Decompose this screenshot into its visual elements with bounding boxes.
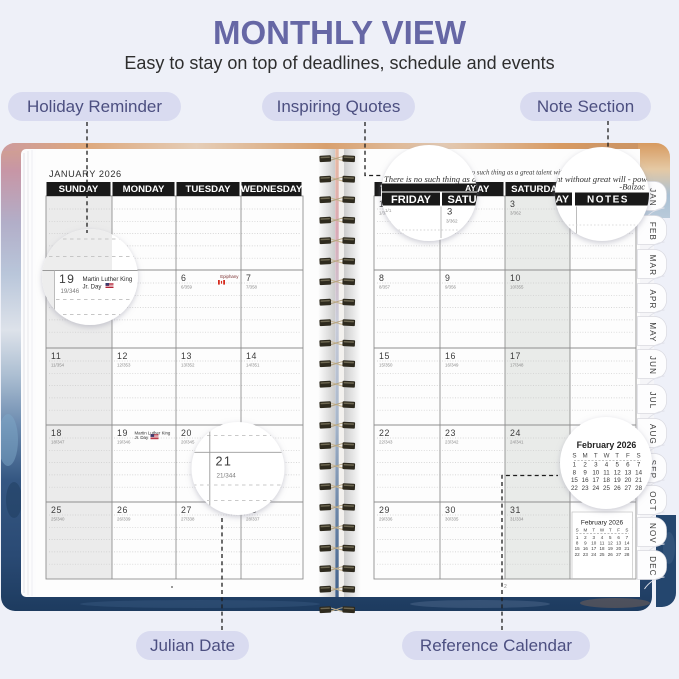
svg-text:14: 14	[246, 351, 257, 361]
svg-text:14: 14	[624, 541, 630, 546]
svg-text:30/335: 30/335	[445, 516, 459, 521]
svg-text:JANUARY 2026: JANUARY 2026	[49, 169, 122, 179]
svg-text:27: 27	[624, 485, 631, 492]
svg-text:9/356: 9/356	[445, 284, 457, 289]
svg-text:16: 16	[582, 477, 589, 484]
svg-text:S: S	[625, 528, 628, 533]
svg-text:11: 11	[600, 541, 605, 546]
svg-text:5: 5	[615, 462, 619, 469]
svg-text:14/351: 14/351	[246, 362, 260, 367]
svg-text:13: 13	[181, 351, 192, 361]
svg-text:February 2026: February 2026	[581, 520, 624, 527]
svg-text:1/1: 1/1	[385, 208, 392, 213]
svg-text:FEB: FEB	[648, 222, 657, 241]
svg-text:7: 7	[637, 462, 641, 469]
svg-text:25: 25	[603, 485, 610, 492]
svg-text:18: 18	[603, 477, 610, 484]
svg-text:SUNDAY: SUNDAY	[59, 184, 99, 195]
svg-text:1: 1	[573, 462, 577, 469]
svg-text:Jr. Day: Jr. Day	[83, 283, 103, 290]
svg-text:WEDNESDAY: WEDNESDAY	[241, 184, 303, 195]
svg-text:22: 22	[571, 485, 578, 492]
svg-text:20: 20	[616, 546, 622, 551]
svg-text:12: 12	[117, 351, 128, 361]
svg-text:17/348: 17/348	[510, 362, 524, 367]
svg-text:7: 7	[246, 273, 252, 283]
svg-text:T: T	[594, 453, 598, 460]
svg-text:10: 10	[592, 469, 599, 476]
svg-text:16/349: 16/349	[445, 362, 459, 367]
svg-text:10: 10	[510, 273, 521, 283]
svg-text:Jr. Day: Jr. Day	[135, 435, 149, 440]
svg-text:21: 21	[624, 546, 630, 551]
svg-text:18: 18	[599, 546, 605, 551]
svg-text:11: 11	[603, 469, 610, 476]
svg-text:28/337: 28/337	[246, 516, 260, 521]
svg-text:20/345: 20/345	[181, 439, 195, 444]
svg-text:M: M	[584, 528, 588, 533]
svg-text:13: 13	[616, 541, 622, 546]
svg-text:21/344: 21/344	[217, 473, 237, 480]
svg-text:NOTES: NOTES	[587, 195, 629, 206]
svg-text:6: 6	[181, 273, 187, 283]
svg-text:3: 3	[594, 462, 598, 469]
svg-text:10/355: 10/355	[510, 284, 524, 289]
svg-text:11/354: 11/354	[51, 362, 65, 367]
svg-text:4: 4	[605, 462, 609, 469]
svg-text:16: 16	[445, 351, 456, 361]
svg-text:10: 10	[591, 541, 597, 546]
svg-text:TUESDAY: TUESDAY	[186, 184, 232, 195]
svg-text:29/336: 29/336	[379, 516, 393, 521]
svg-text:T: T	[592, 528, 595, 533]
svg-text:6: 6	[626, 462, 630, 469]
svg-text:12: 12	[614, 469, 621, 476]
svg-text:23: 23	[445, 428, 456, 438]
svg-text:3: 3	[510, 199, 516, 209]
svg-text:26: 26	[608, 552, 614, 557]
svg-text:W: W	[604, 453, 610, 460]
svg-text:7/358: 7/358	[246, 284, 258, 289]
svg-text:FRIDAY: FRIDAY	[391, 194, 432, 206]
svg-text:18/347: 18/347	[51, 439, 65, 444]
svg-text:25/340: 25/340	[51, 516, 65, 521]
svg-text:2: 2	[583, 462, 587, 469]
svg-text:T: T	[615, 453, 619, 460]
svg-text:27: 27	[181, 505, 192, 515]
svg-text:30: 30	[445, 505, 456, 515]
svg-text:19/346: 19/346	[117, 439, 131, 444]
svg-text:8: 8	[573, 469, 577, 476]
svg-text:25: 25	[51, 505, 62, 515]
svg-text:24/341: 24/341	[510, 439, 524, 444]
svg-text:3/362: 3/362	[510, 210, 522, 215]
svg-text:MAR: MAR	[648, 255, 657, 276]
svg-text:F: F	[617, 528, 620, 533]
svg-text:23: 23	[583, 552, 589, 557]
svg-text:17: 17	[592, 477, 599, 484]
svg-text:T: T	[609, 528, 612, 533]
svg-text:NOV: NOV	[648, 523, 657, 544]
svg-text:21: 21	[635, 477, 642, 484]
svg-text:S: S	[572, 453, 576, 460]
svg-text:21: 21	[216, 455, 233, 469]
svg-text:2: 2	[504, 584, 507, 590]
svg-text:15: 15	[379, 351, 390, 361]
svg-text:12/353: 12/353	[117, 362, 131, 367]
svg-text:28: 28	[635, 485, 642, 492]
svg-text:13/352: 13/352	[181, 362, 195, 367]
svg-text:OCT: OCT	[648, 491, 657, 512]
svg-text:13: 13	[624, 469, 631, 476]
svg-text:S: S	[576, 528, 579, 533]
svg-text:Epiphany: Epiphany	[220, 274, 239, 279]
svg-text:8/357: 8/357	[379, 284, 391, 289]
svg-text:20: 20	[624, 477, 631, 484]
svg-text:23: 23	[582, 485, 589, 492]
svg-text:31: 31	[510, 505, 521, 515]
svg-text:19: 19	[614, 477, 621, 484]
svg-text:APR: APR	[648, 289, 657, 309]
svg-text:S: S	[637, 453, 641, 460]
svg-text:27: 27	[616, 552, 622, 557]
svg-text:27/338: 27/338	[181, 516, 195, 521]
svg-text:24: 24	[592, 485, 599, 492]
svg-text:22: 22	[575, 552, 581, 557]
svg-text:15: 15	[571, 477, 578, 484]
svg-text:JUN: JUN	[648, 356, 657, 375]
svg-text:MONDAY: MONDAY	[123, 184, 165, 195]
svg-text:February 2026: February 2026	[577, 440, 637, 450]
svg-text:8: 8	[379, 273, 385, 283]
svg-text:15: 15	[575, 546, 581, 551]
svg-text:28: 28	[624, 552, 630, 557]
svg-text:25: 25	[599, 552, 605, 557]
svg-text:19: 19	[59, 272, 75, 286]
svg-text:17: 17	[591, 546, 597, 551]
svg-text:3/362: 3/362	[446, 219, 458, 224]
svg-text:AY: AY	[555, 194, 569, 206]
svg-text:24: 24	[510, 428, 521, 438]
svg-text:15/350: 15/350	[379, 362, 393, 367]
svg-text:3: 3	[447, 207, 452, 218]
svg-text:DEC: DEC	[648, 556, 657, 577]
svg-text:22: 22	[379, 428, 390, 438]
svg-text:9: 9	[445, 273, 451, 283]
svg-text:26: 26	[117, 505, 128, 515]
svg-text:12: 12	[608, 541, 614, 546]
svg-text:9: 9	[583, 469, 587, 476]
svg-text:JAN: JAN	[648, 188, 657, 207]
svg-text:29: 29	[379, 505, 390, 515]
svg-text:16: 16	[583, 546, 589, 551]
svg-text:18: 18	[51, 428, 62, 438]
svg-text:F: F	[626, 453, 630, 460]
svg-text:14: 14	[635, 469, 642, 476]
svg-text:JUL: JUL	[648, 392, 657, 410]
svg-text:24: 24	[591, 552, 597, 557]
svg-text:22/343: 22/343	[379, 439, 393, 444]
svg-text:11: 11	[51, 351, 61, 361]
svg-text:20: 20	[181, 428, 192, 438]
svg-text:AUG: AUG	[648, 424, 657, 445]
svg-text:17: 17	[510, 351, 521, 361]
svg-text:MAY: MAY	[648, 322, 657, 342]
svg-text:19: 19	[608, 546, 614, 551]
svg-text:M: M	[583, 453, 588, 460]
svg-text:19: 19	[117, 428, 128, 438]
svg-text:Martin Luther King: Martin Luther King	[83, 276, 133, 283]
svg-text:-Balzac: -Balzac	[619, 183, 645, 192]
svg-text:6/359: 6/359	[181, 284, 193, 289]
svg-text:AY: AY	[465, 183, 476, 193]
svg-text:26/339: 26/339	[117, 516, 131, 521]
svg-text:19/346: 19/346	[61, 288, 80, 295]
svg-text:23/342: 23/342	[445, 439, 459, 444]
svg-text:26: 26	[614, 485, 621, 492]
svg-text:31/334: 31/334	[510, 516, 524, 521]
